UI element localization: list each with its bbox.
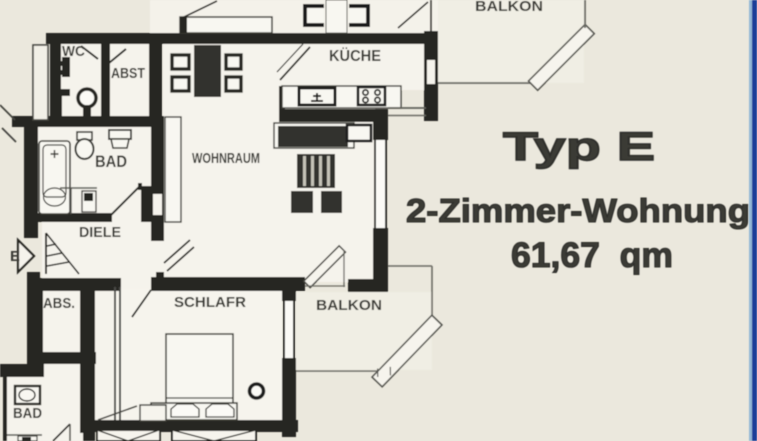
svg-text:DIELE: DIELE — [79, 224, 121, 241]
svg-text:ABST: ABST — [111, 65, 145, 82]
svg-text:61,67 qm: 61,67 qm — [511, 236, 673, 275]
svg-text:2-Zimmer-Wohnung: 2-Zimmer-Wohnung — [406, 192, 750, 229]
svg-text:BALKON: BALKON — [316, 297, 382, 314]
svg-text:E: E — [10, 248, 20, 265]
svg-text:BALKON: BALKON — [475, 0, 543, 15]
svg-text:ABS.: ABS. — [43, 295, 75, 312]
svg-text:KÜCHE: KÜCHE — [329, 46, 381, 65]
svg-text:BAD: BAD — [95, 152, 127, 171]
svg-text:WC: WC — [62, 43, 85, 60]
svg-text:Typ E: Typ E — [503, 125, 655, 169]
svg-text:WOHNRAUM: WOHNRAUM — [192, 150, 260, 167]
svg-text:BAD: BAD — [13, 405, 42, 422]
svg-text:SCHLAFR: SCHLAFR — [174, 294, 246, 311]
